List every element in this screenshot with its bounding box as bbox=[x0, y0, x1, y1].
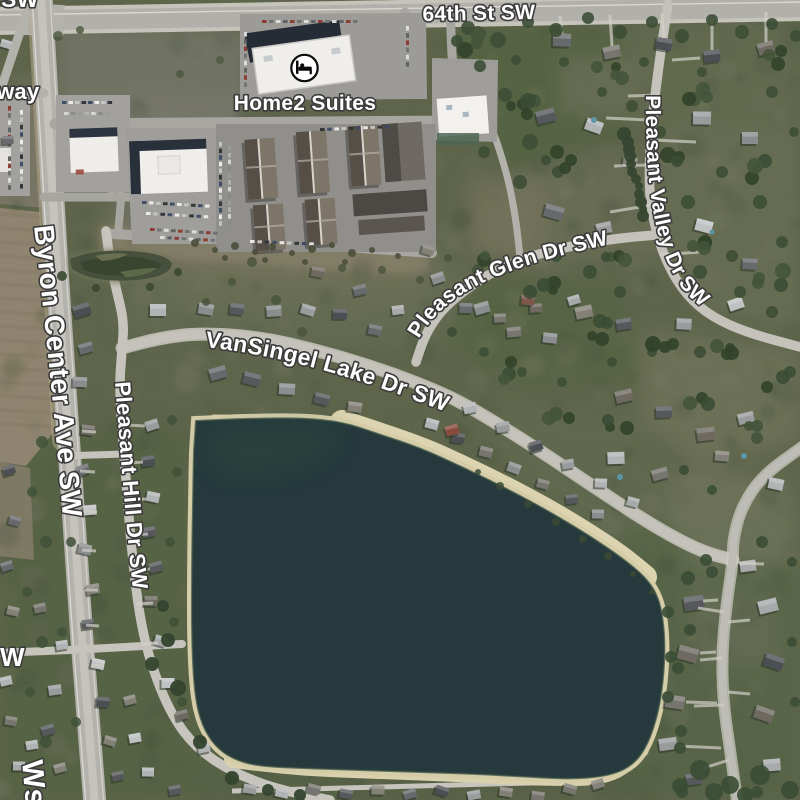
svg-text:way: way bbox=[0, 79, 40, 104]
svg-text:64th St SW: 64th St SW bbox=[422, 1, 535, 26]
svg-text:Home2 Suites: Home2 Suites bbox=[234, 92, 376, 115]
svg-text:Ws: Ws bbox=[15, 759, 52, 800]
svg-text:SW: SW bbox=[1, 0, 39, 12]
svg-text:W: W bbox=[0, 642, 25, 672]
